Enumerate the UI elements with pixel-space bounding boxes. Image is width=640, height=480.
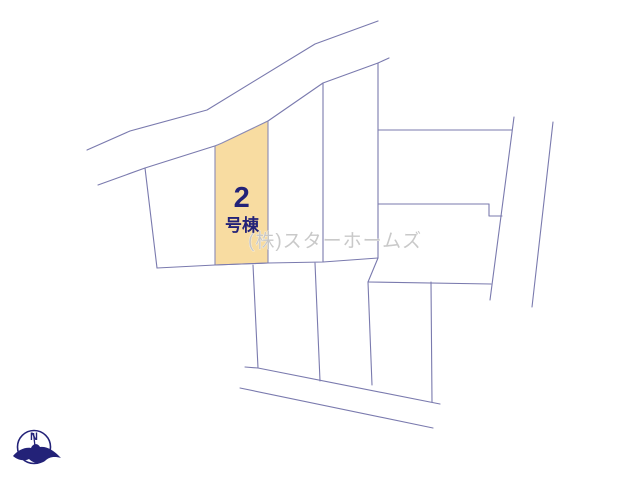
bottom-road-lower-edge — [240, 388, 433, 428]
site-plan-drawing: (株)スターホームズ 2 号棟 N — [0, 0, 640, 480]
lower-divider-2 — [315, 263, 320, 381]
compass-bird-icon — [13, 444, 61, 463]
compass: N — [13, 431, 61, 464]
lower-row-step-boundary — [368, 258, 378, 385]
left-parcel-west-boundary — [145, 168, 157, 268]
lot-2-suffix-label: 号棟 — [225, 215, 260, 235]
lower-divider-1 — [253, 265, 258, 368]
company-watermark: (株)スターホームズ — [248, 230, 422, 252]
right-slanted-boundary-1 — [490, 117, 514, 300]
right-slanted-boundary-2 — [532, 122, 553, 307]
lot-2-number-label: 2 — [234, 182, 251, 214]
bottom-road-upper-edge — [245, 367, 440, 404]
road-upper-edge — [87, 21, 378, 150]
lower-row-top-boundary — [368, 282, 491, 284]
lower-divider-3 — [431, 282, 432, 402]
right-block-notch — [489, 204, 502, 216]
plot-map-canvas: (株)スターホームズ 2 号棟 N — [0, 0, 640, 480]
